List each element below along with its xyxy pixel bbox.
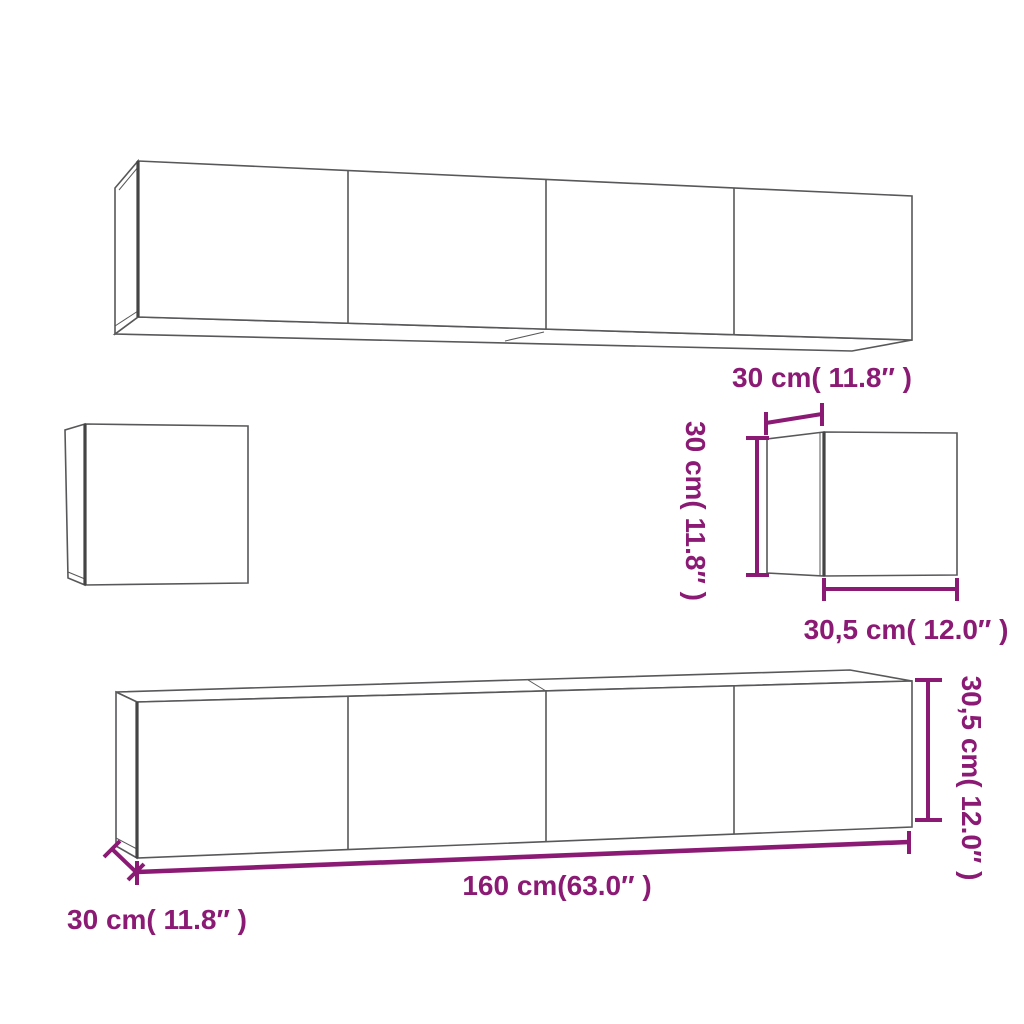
- left-cabinet-front-face: [85, 424, 248, 585]
- cube-depth-label: 30,5 cm( 12.0″ ): [804, 614, 1009, 646]
- bottom-width-label: 160 cm(63.0″ ): [462, 870, 651, 902]
- cube-height-label: 30 cm( 11.8″ ): [679, 421, 711, 601]
- small-wall-cabinet-right-drawing: [746, 403, 957, 601]
- bottom-height-dimension-line: [915, 680, 942, 820]
- left-cabinet-side-face: [65, 424, 85, 585]
- cube-depth-dimension-line: [824, 578, 957, 601]
- top-cabinet-front-face: [138, 161, 912, 340]
- top-cabinet-side-face: [115, 161, 138, 334]
- bottom-cabinet-front-face: [137, 681, 912, 858]
- product-dimension-diagram: 30 cm( 11.8″ ) 30 cm( 11.8″ ) 30,5 cm( 1…: [0, 0, 1024, 1024]
- bottom-depth-label: 30 cm( 11.8″ ): [67, 904, 247, 936]
- cube-width-dimension-line: [766, 403, 822, 435]
- right-cube-side-face: [767, 432, 824, 576]
- cube-width-label: 30 cm( 11.8″ ): [732, 362, 912, 394]
- top-wall-cabinet-drawing: [115, 161, 912, 351]
- right-cube-front-face: [824, 432, 957, 576]
- small-wall-cabinet-left-drawing: [65, 424, 248, 585]
- bottom-cabinet-side-face: [116, 692, 137, 858]
- cube-height-dimension-line: [746, 438, 769, 575]
- bottom-height-label: 30,5 cm( 12.0″ ): [955, 676, 987, 881]
- bottom-tv-cabinet-drawing: [104, 670, 942, 885]
